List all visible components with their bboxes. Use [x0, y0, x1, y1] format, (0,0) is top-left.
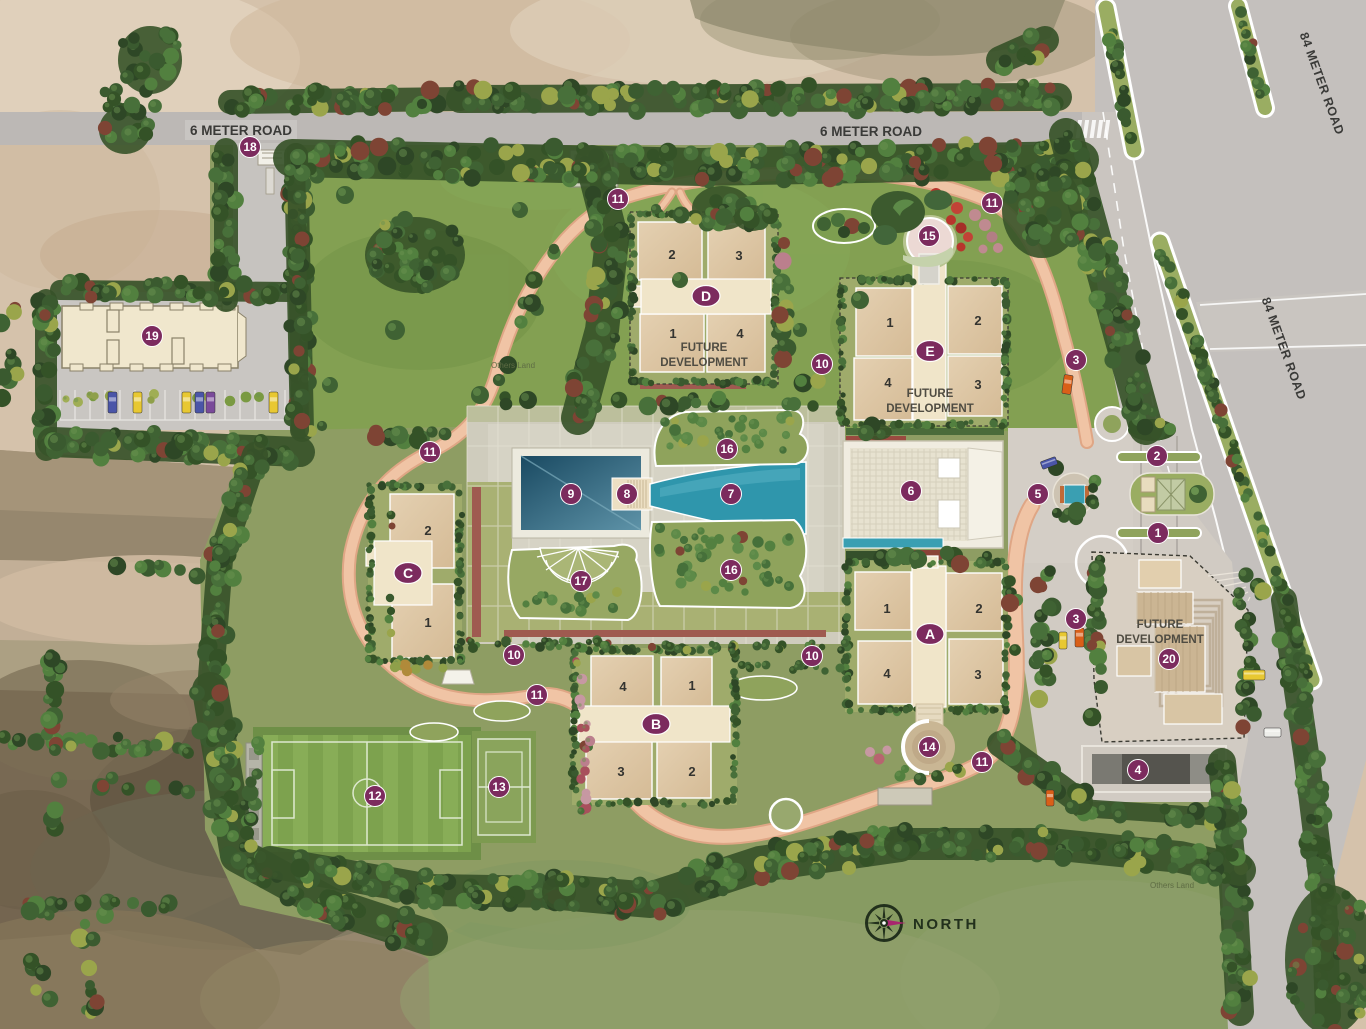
svg-text:17: 17 — [574, 574, 588, 588]
svg-text:1: 1 — [669, 326, 676, 341]
svg-text:6: 6 — [908, 484, 915, 498]
svg-text:1: 1 — [883, 601, 890, 616]
svg-text:6 METER ROAD: 6 METER ROAD — [190, 123, 292, 138]
svg-text:5: 5 — [1035, 487, 1042, 501]
svg-text:11: 11 — [976, 755, 989, 769]
svg-text:6 METER ROAD: 6 METER ROAD — [820, 124, 922, 139]
svg-text:1: 1 — [1155, 526, 1162, 540]
svg-text:12: 12 — [368, 789, 382, 803]
svg-text:2: 2 — [668, 247, 675, 262]
svg-text:B: B — [651, 716, 661, 732]
svg-text:FUTURE: FUTURE — [907, 388, 954, 400]
svg-text:A: A — [925, 626, 935, 642]
svg-text:C: C — [403, 565, 413, 581]
svg-text:DEVELOPMENT: DEVELOPMENT — [1116, 634, 1204, 646]
svg-text:Others Land: Others Land — [1150, 881, 1194, 890]
svg-text:4: 4 — [884, 375, 892, 390]
svg-text:2: 2 — [975, 601, 982, 616]
svg-text:3: 3 — [1073, 612, 1080, 626]
svg-text:4: 4 — [619, 679, 627, 694]
svg-text:4: 4 — [883, 666, 891, 681]
svg-text:11: 11 — [612, 192, 625, 206]
svg-text:10: 10 — [805, 649, 819, 663]
svg-text:D: D — [701, 288, 711, 304]
svg-text:10: 10 — [507, 648, 521, 662]
svg-text:13: 13 — [492, 780, 506, 794]
svg-text:3: 3 — [974, 667, 981, 682]
svg-text:2: 2 — [1154, 449, 1161, 463]
svg-text:11: 11 — [531, 688, 544, 702]
svg-text:DEVELOPMENT: DEVELOPMENT — [886, 403, 974, 415]
svg-text:2: 2 — [424, 523, 431, 538]
svg-text:4: 4 — [1135, 763, 1142, 777]
svg-text:3: 3 — [735, 248, 742, 263]
svg-text:NORTH: NORTH — [913, 916, 979, 933]
svg-text:FUTURE: FUTURE — [681, 342, 728, 354]
svg-text:2: 2 — [688, 764, 695, 779]
svg-text:9: 9 — [568, 487, 575, 501]
svg-text:DEVELOPMENT: DEVELOPMENT — [660, 357, 748, 369]
svg-text:15: 15 — [922, 229, 936, 243]
svg-text:2: 2 — [974, 313, 981, 328]
svg-text:1: 1 — [424, 615, 431, 630]
svg-text:10: 10 — [815, 357, 829, 371]
svg-text:FUTURE: FUTURE — [1137, 619, 1184, 631]
svg-text:Others Land: Others Land — [491, 361, 535, 370]
svg-text:19: 19 — [145, 329, 159, 343]
svg-text:1: 1 — [688, 678, 695, 693]
svg-text:E: E — [925, 343, 934, 359]
svg-text:3: 3 — [1073, 353, 1080, 367]
svg-text:16: 16 — [724, 563, 738, 577]
svg-text:11: 11 — [986, 196, 999, 210]
svg-text:11: 11 — [424, 445, 437, 459]
svg-text:8: 8 — [624, 487, 631, 501]
svg-text:20: 20 — [1162, 652, 1176, 666]
svg-text:1: 1 — [886, 315, 893, 330]
svg-text:3: 3 — [974, 377, 981, 392]
svg-text:3: 3 — [617, 764, 624, 779]
svg-text:4: 4 — [736, 326, 744, 341]
svg-text:16: 16 — [720, 442, 734, 456]
svg-text:14: 14 — [922, 740, 936, 754]
svg-text:18: 18 — [243, 140, 257, 154]
svg-text:7: 7 — [728, 487, 735, 501]
